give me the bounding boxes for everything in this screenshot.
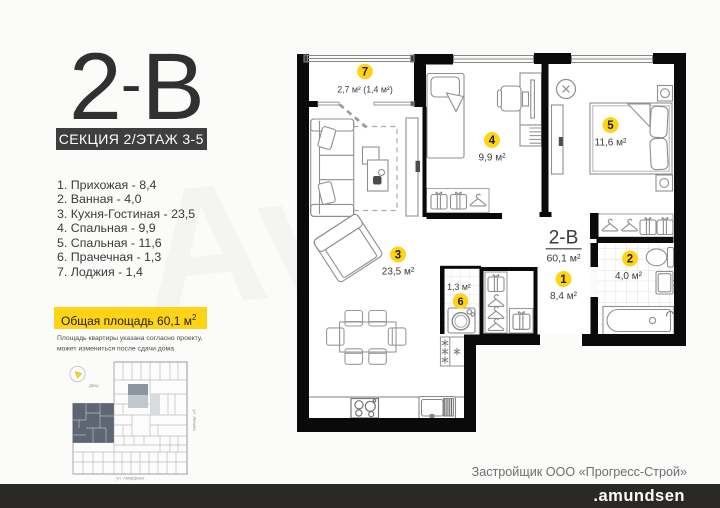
svg-text:11,6 м²: 11,6 м²	[595, 138, 627, 149]
svg-text:2-В: 2-В	[549, 228, 579, 249]
svg-text:7: 7	[362, 67, 368, 79]
svg-text:4,0 м²: 4,0 м²	[615, 271, 643, 282]
svg-text:8,4 м²: 8,4 м²	[550, 291, 578, 302]
svg-text:4: 4	[489, 135, 496, 147]
svg-text:1,3 м²: 1,3 м²	[447, 282, 471, 292]
svg-text:Двор: Двор	[89, 383, 99, 388]
svg-text:5: 5	[607, 120, 614, 132]
svg-text:6: 6	[457, 296, 463, 308]
svg-text:ул. Ленина: ул. Ленина	[192, 409, 197, 431]
svg-text:2: 2	[627, 254, 633, 266]
svg-text:23,5 м²: 23,5 м²	[382, 267, 415, 278]
svg-text:2,7 м² (1,4 м²): 2,7 м² (1,4 м²)	[337, 85, 393, 95]
svg-text:1: 1	[560, 274, 567, 286]
svg-text:3: 3	[395, 250, 401, 262]
svg-text:60,1 м²: 60,1 м²	[546, 253, 581, 265]
svg-text:9,9 м²: 9,9 м²	[479, 153, 507, 164]
svg-text:ул. Аморфная: ул. Аморфная	[116, 476, 143, 481]
